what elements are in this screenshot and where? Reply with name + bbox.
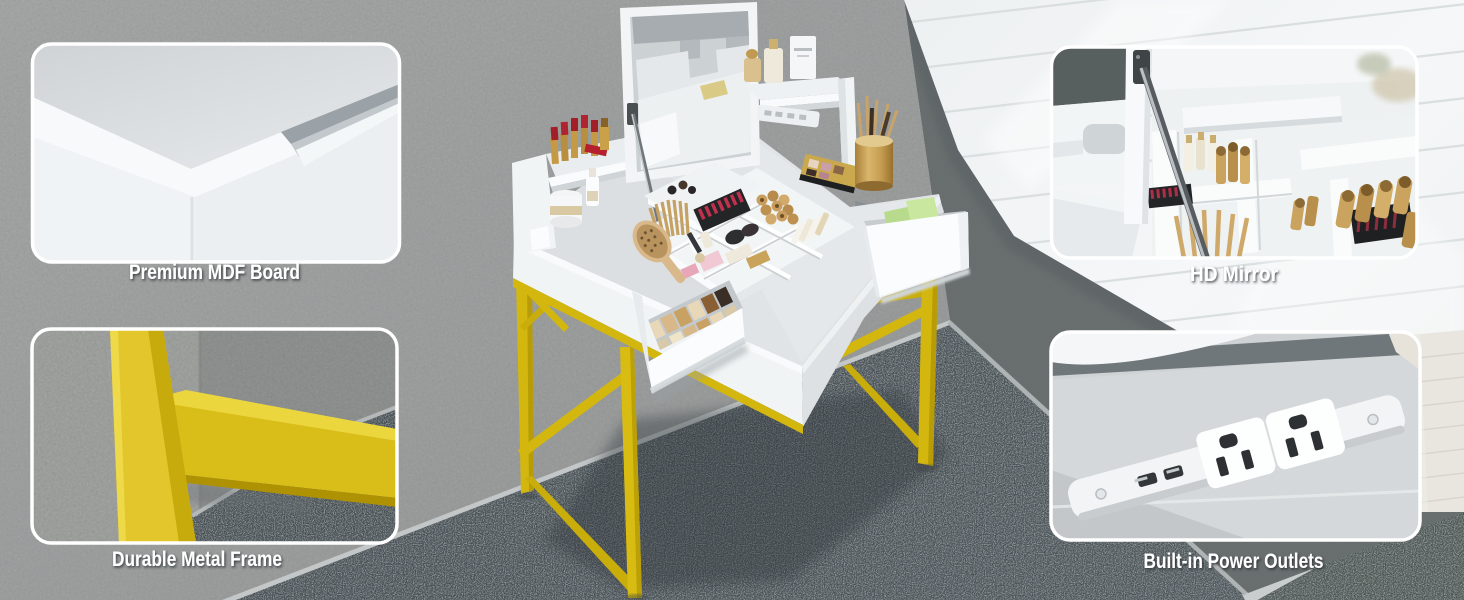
svg-text:Premium MDF Board: Premium MDF Board — [129, 261, 300, 284]
svg-text:HD Mirror: HD Mirror — [1190, 263, 1278, 286]
svg-text:Built-in Power Outlets: Built-in Power Outlets — [1144, 550, 1324, 573]
svg-text:Durable Metal Frame: Durable Metal Frame — [112, 548, 282, 571]
